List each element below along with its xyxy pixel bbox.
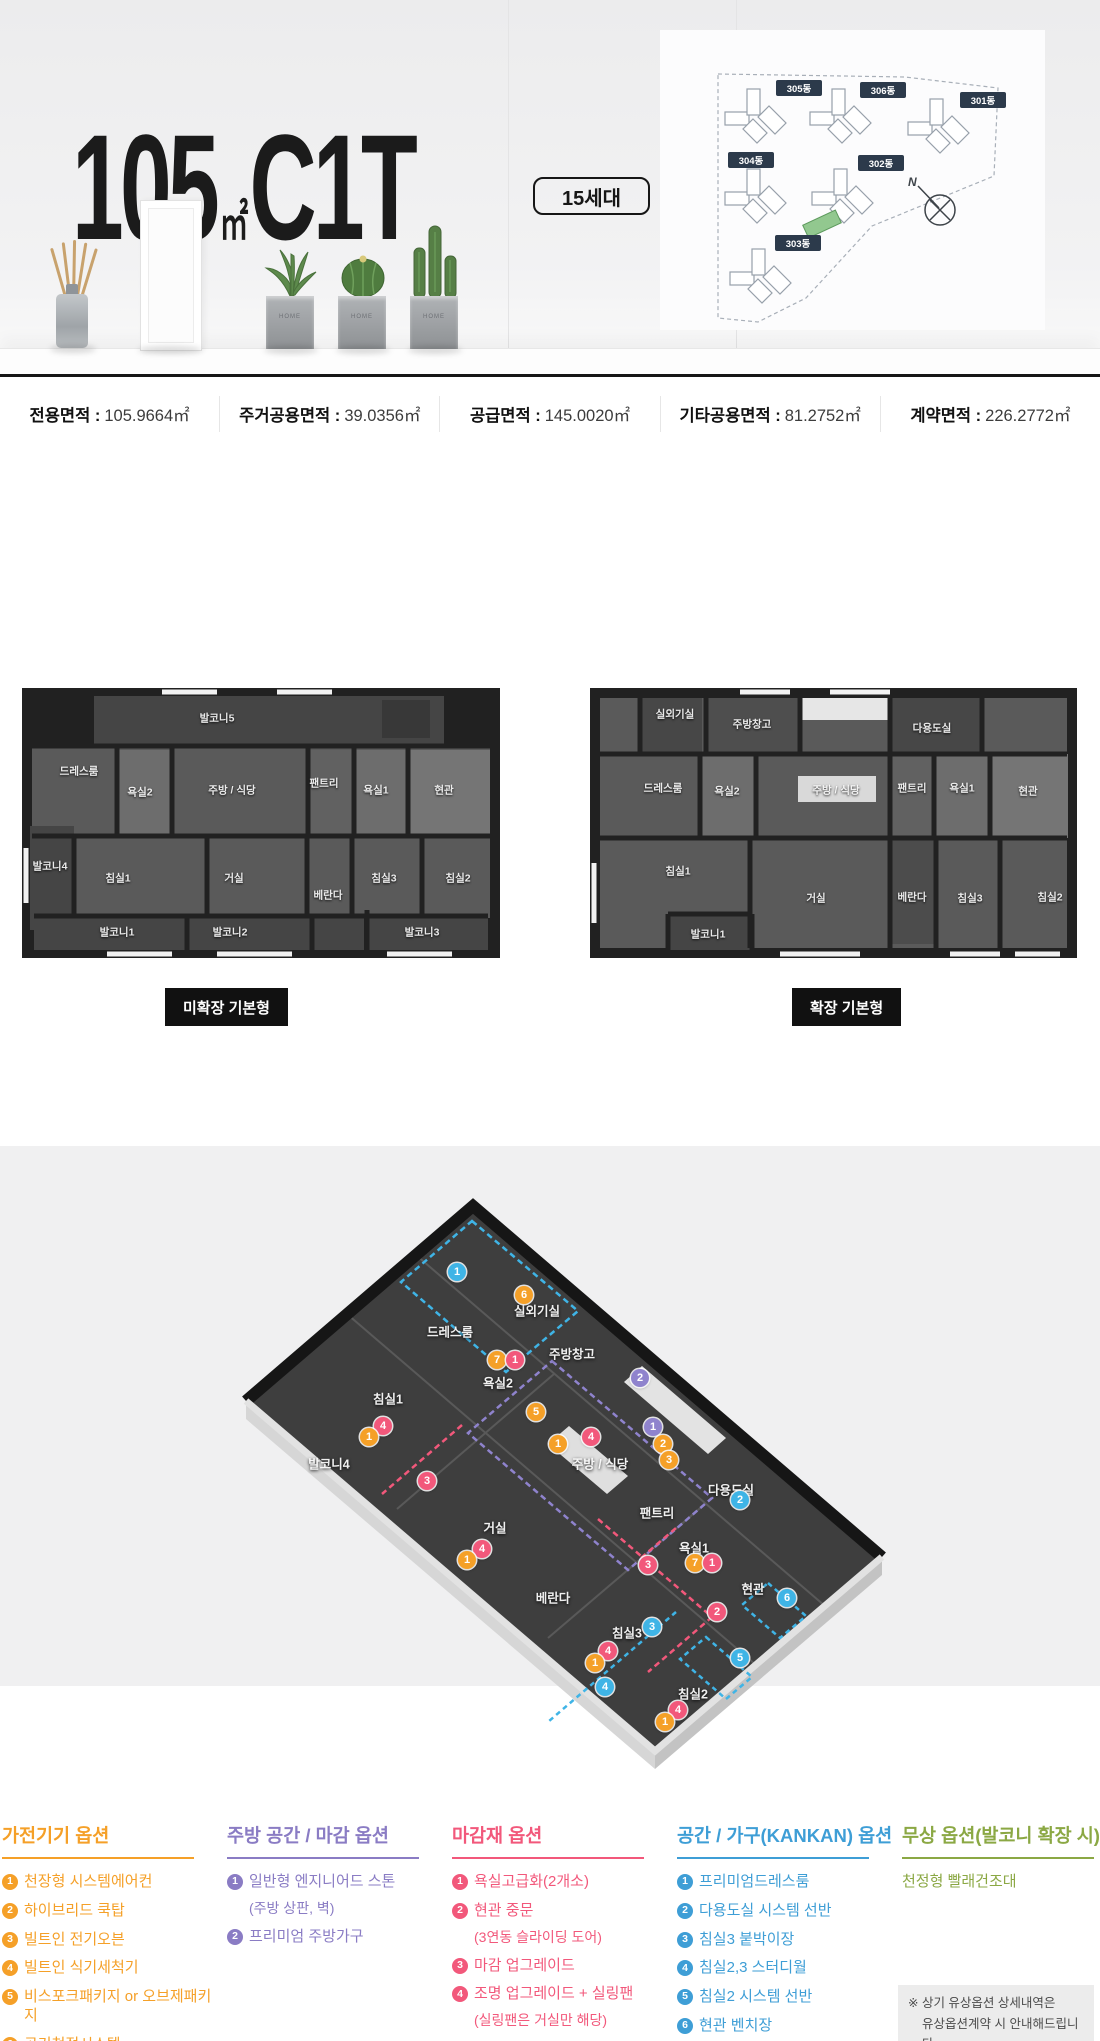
option-item-number: 2: [2, 1903, 18, 1919]
option-column-4: 공간 / 가구(KANKAN) 옵션1프리미엄드레스룸2다용도실 시스템 선반3…: [677, 1822, 902, 2041]
area-info-item: 계약면적 : 226.2772㎡: [881, 396, 1100, 432]
option-number-badge: 1: [656, 1713, 674, 1731]
household-count-badge: 15세대: [533, 177, 650, 215]
option-column-title: 가전기기 옵션: [2, 1822, 194, 1859]
title-area-unit: ㎡: [220, 197, 249, 249]
building-label: 303동: [786, 239, 811, 250]
option-column-2: 주방 공간 / 마감 옵션1일반형 엔지니어드 스톤(주방 상판, 벽)2프리미…: [227, 1822, 452, 2041]
floor-plan-basic-drawing: [22, 688, 500, 958]
floor-plan-basic: 발코니5드레스룸욕실2주방 / 식당팬트리욕실1현관발코니4침실1거실베란다침실…: [22, 688, 500, 958]
wall-seam: [508, 0, 509, 348]
option-column-title: 마감재 옵션: [452, 1822, 644, 1859]
option-item: 1욕실고급화(2개소): [452, 1873, 667, 1892]
option-item-number: 1: [2, 1874, 18, 1890]
option-item: 1프리미엄드레스룸: [677, 1873, 892, 1892]
option-item: 4침실2,3 스터디월: [677, 1959, 892, 1978]
option-item-number: 4: [2, 1960, 18, 1976]
building-label: 304동: [739, 156, 764, 167]
site-plan: 305동 306동 301동 304동 302동 303동 N: [660, 30, 1045, 330]
option-item-number: 3: [677, 1932, 693, 1948]
frame-shadow: [138, 346, 202, 354]
option-item: 3마감 업그레이드: [452, 1957, 667, 1976]
option-column-1: 가전기기 옵션1천장형 시스템에어컨2하이브리드 쿡탑3빌트인 전기오븐4빌트인…: [2, 1822, 227, 2041]
building-label: 302동: [869, 159, 894, 170]
highlighted-unit: [803, 210, 842, 238]
building-label: 305동: [787, 84, 812, 95]
option-item-number: 1: [227, 1874, 243, 1890]
option-item-number: 1: [452, 1874, 468, 1890]
option-item-number: 1: [677, 1874, 693, 1890]
option-item: 2현관 중문: [452, 1902, 667, 1921]
area-info-item: 주거공용면적 : 39.0356㎡: [220, 396, 440, 432]
unit-type-title: 105㎡C1T: [72, 112, 414, 262]
option-item-number: 2: [677, 1903, 693, 1919]
option-item: 1천장형 시스템에어컨: [2, 1873, 217, 1892]
option-column-title: 무상 옵션(발코니 확장 시): [902, 1822, 1094, 1859]
option-item-number: 6: [677, 2018, 693, 2034]
building-label: 306동: [871, 86, 896, 97]
option-item-number: 4: [677, 1960, 693, 1976]
option-column-3: 마감재 옵션1욕실고급화(2개소)2현관 중문(3연동 슬라이딩 도어)3마감 …: [452, 1822, 677, 2041]
compass-north-label: N: [908, 175, 917, 189]
option-item: 6공기청정시스템: [2, 2036, 217, 2041]
area-info-item: 전용면적 : 105.9664㎡: [0, 396, 220, 432]
notice-box: ※ 상기 유상옵션 상세내역은유상옵션계약 시 안내해드립니다.: [898, 1985, 1094, 2041]
option-item-number: 5: [677, 1989, 693, 2005]
option-item-number: 6: [2, 2037, 18, 2041]
option-item-sub: (실링팬은 거실만 해당): [474, 2010, 677, 2030]
option-item: 4조명 업그레이드 + 실링팬: [452, 1985, 667, 2004]
area-info-item: 기타공용면적 : 81.2752㎡: [661, 396, 881, 432]
option-number-badge: 4: [669, 1701, 687, 1719]
option-item: 1일반형 엔지니어드 스톤: [227, 1873, 442, 1892]
page: 105㎡C1T 15세대: [0, 0, 1100, 2041]
extended-plan-button[interactable]: 확장 기본형: [792, 988, 901, 1026]
option-item-number: 3: [452, 1958, 468, 1974]
area-info-bar: 전용면적 : 105.9664㎡주거공용면적 : 39.0356㎡공급면적 : …: [0, 374, 1100, 450]
iso-section-background: [0, 1146, 1100, 1686]
option-item: 5비스포크패키지 or 오브제패키지: [2, 1988, 217, 2026]
floor-plan-extended: 실외기실주방창고다용도실드레스룸욕실2주방 / 식당팬트리욕실1현관침실1거실베…: [590, 688, 1077, 958]
floor-plan-extended-drawing: [590, 688, 1077, 958]
option-item-sub: (3연동 슬라이딩 도어): [474, 1927, 677, 1947]
option-item: 2하이브리드 쿡탑: [2, 1902, 217, 1921]
area-info-item: 공급면적 : 145.0020㎡: [440, 396, 660, 432]
option-item-number: 2: [227, 1929, 243, 1945]
option-item: 3빌트인 전기오븐: [2, 1931, 217, 1950]
photo-frame: [140, 200, 202, 351]
building-label: 301동: [971, 96, 996, 107]
option-item: 5침실2 시스템 선반: [677, 1988, 892, 2007]
option-item-number: 3: [2, 1932, 18, 1948]
header-section: 105㎡C1T 15세대: [0, 0, 1100, 374]
option-item-number: 2: [452, 1903, 468, 1919]
basic-plan-button[interactable]: 미확장 기본형: [165, 988, 288, 1026]
option-item: 2프리미엄 주방가구: [227, 1928, 442, 1947]
site-plan-drawing: 305동 306동 301동 304동 302동 303동 N: [660, 30, 1045, 330]
option-column-title: 공간 / 가구(KANKAN) 옵션: [677, 1822, 869, 1859]
option-item: 4빌트인 식기세척기: [2, 1959, 217, 1978]
option-column-title: 주방 공간 / 마감 옵션: [227, 1822, 419, 1859]
option-item: 천정형 빨래건조대: [902, 1873, 1100, 1892]
option-item-number: 5: [2, 1989, 18, 2005]
option-item: 3침실3 붙박이장: [677, 1931, 892, 1950]
iso-room-label: 침실2: [678, 1684, 708, 1703]
compass-icon: N: [908, 175, 955, 225]
option-item-number: 4: [452, 1986, 468, 2002]
option-item-sub: (주방 상판, 벽): [249, 1898, 452, 1918]
option-item: 2다용도실 시스템 선반: [677, 1902, 892, 1921]
option-item: 6현관 벤치장: [677, 2017, 892, 2036]
